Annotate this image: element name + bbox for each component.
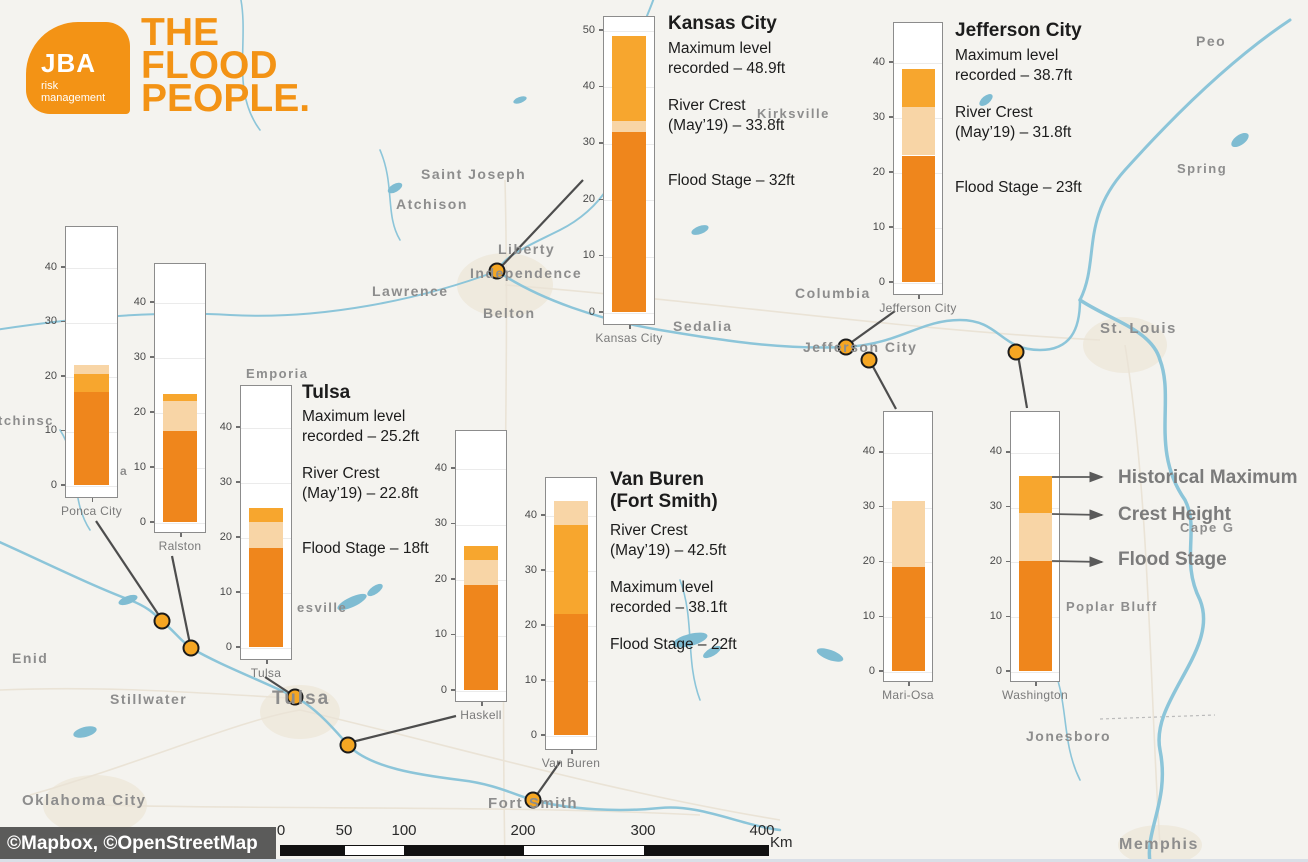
map-place-label: Memphis [1119,836,1199,854]
x-tick-mark [908,682,910,686]
y-tick-mark [61,266,65,268]
flood-map-canvas[interactable]: Saint JosephAtchisonLibertyIndependenceL… [0,0,1308,862]
map-place-label: St. Louis [1100,320,1177,337]
map-place-label: Liberty [498,241,555,257]
y-tick-label: 0 [569,306,595,318]
bar-segment-crest [1019,513,1052,561]
jba-logo: JBA risk management [26,22,130,114]
gauge-name-label: Kansas City [595,331,662,345]
y-tick-mark [150,466,154,468]
gauge-name-label: Tulsa [251,666,281,680]
callout-kansas-city: Kansas CityMaximum levelrecorded – 48.9f… [668,13,883,35]
map-place-label: Jonesboro [1026,728,1111,744]
bar-segment-flood-stage [612,132,646,312]
y-tick-label: 10 [31,424,57,436]
map-place-label: Emporia [246,366,309,381]
callout-paragraph: River Crest(May’19) – 31.8ft [955,103,1071,143]
y-tick-label: 10 [569,249,595,261]
gridline [604,31,654,32]
bar-segment-flood-stage [554,614,588,735]
bar-segment-crest [902,107,935,155]
gauge-point-marker-haskell[interactable] [340,737,357,754]
y-tick-mark [879,506,883,508]
gauge-name-label: Ralston [159,539,202,553]
x-tick-mark [481,702,483,706]
jba-logo-sub1: risk [41,80,58,92]
gridline [894,63,942,64]
y-tick-label: 40 [120,296,146,308]
gauge-point-marker-independence[interactable] [489,263,506,280]
bar-segment-flood-stage [249,548,283,647]
scale-tick-300: 300 [630,822,655,839]
y-tick-label: 0 [849,665,875,677]
y-tick-mark [150,301,154,303]
y-tick-label: 40 [206,421,232,433]
y-tick-label: 20 [859,166,885,178]
gridline [155,523,205,524]
y-tick-mark [879,670,883,672]
y-tick-label: 30 [31,315,57,327]
jba-logo-text: JBA [41,48,96,79]
x-tick-mark [266,660,268,664]
y-tick-label: 0 [421,684,447,696]
gauge-point-marker-mari-osa[interactable] [861,352,878,369]
y-tick-label: 20 [976,555,1002,567]
y-tick-label: 30 [511,564,537,576]
y-tick-mark [599,29,603,31]
y-tick-label: 30 [976,500,1002,512]
gridline [894,283,942,284]
bar-segment-flood-stage [74,392,109,485]
scale-tick-100: 100 [391,822,416,839]
y-tick-label: 40 [569,80,595,92]
y-tick-mark [451,467,455,469]
y-tick-mark [1006,616,1010,618]
y-tick-mark [599,86,603,88]
callout-title: Kansas City [668,13,883,35]
bar-segment-crest [249,522,283,548]
legend-crest-height: Crest Height [1118,504,1231,526]
y-tick-label: 40 [511,509,537,521]
y-tick-mark [61,430,65,432]
y-tick-label: 30 [421,517,447,529]
map-place-label: Oklahoma City [22,792,147,809]
y-tick-mark [1006,670,1010,672]
y-tick-mark [879,616,883,618]
x-tick-mark [1035,682,1037,686]
gridline [241,648,291,649]
y-tick-mark [879,451,883,453]
y-tick-mark [1006,561,1010,563]
gauge-name-label: Haskell [460,708,501,722]
y-tick-label: 20 [120,406,146,418]
legend-flood-stage: Flood Stage [1118,549,1227,571]
bar-segment-historical-maximum [554,525,588,614]
bar-segment-historical-maximum [74,374,109,392]
gridline [66,268,117,269]
jba-logo-sub2: management [41,92,105,104]
callout-paragraph: Flood Stage – 18ft [302,539,429,559]
map-place-label: Spring [1177,161,1227,176]
y-tick-mark [599,311,603,313]
y-tick-label: 40 [859,56,885,68]
y-tick-label: 0 [31,479,57,491]
y-tick-label: 30 [120,351,146,363]
bar-segment-historical-maximum [1019,476,1052,513]
map-place-label: Saint Joseph [421,166,526,182]
map-place-label: Enid [12,650,48,666]
y-tick-label: 10 [859,221,885,233]
y-tick-mark [1006,506,1010,508]
x-tick-mark [180,533,182,537]
callout-paragraph: Flood Stage – 23ft [955,178,1082,198]
callout-paragraph: Maximum levelrecorded – 38.7ft [955,46,1072,86]
y-tick-label: 30 [849,500,875,512]
callout-title: Tulsa [302,382,517,404]
map-attribution: ©Mapbox, ©OpenStreetMap [0,827,276,861]
map-place-label: Stillwater [110,691,187,707]
y-tick-label: 40 [421,462,447,474]
y-tick-mark [889,61,893,63]
y-tick-mark [889,281,893,283]
y-tick-mark [61,375,65,377]
y-tick-label: 20 [31,370,57,382]
y-tick-label: 10 [421,628,447,640]
bar-segment-crest [892,501,925,567]
y-tick-mark [150,356,154,358]
callout-paragraph: Flood Stage – 22ft [610,635,737,655]
gauge-name-label: Jefferson City [879,301,956,315]
bar-segment-historical-maximum [249,508,283,521]
tagline: THE FLOOD PEOPLE. [141,16,310,115]
x-tick-mark [92,498,94,502]
y-tick-mark [1006,451,1010,453]
map-place-label: Independence [470,265,582,281]
y-tick-mark [889,226,893,228]
y-tick-mark [150,521,154,523]
y-tick-mark [541,734,545,736]
y-tick-mark [451,634,455,636]
map-place-label: Peo [1196,33,1226,49]
callout-paragraph: Maximum levelrecorded – 38.1ft [610,578,727,618]
callout-tulsa: TulsaMaximum levelrecorded – 25.2ftRiver… [302,382,517,404]
y-tick-mark [451,689,455,691]
y-tick-label: 10 [120,461,146,473]
y-tick-label: 40 [849,445,875,457]
x-tick-mark [918,295,920,299]
gauge-point-marker-jefferson-city[interactable] [838,339,855,356]
map-place-label: Sedalia [673,318,733,334]
gauge-point-marker-ponca-city[interactable] [154,613,171,630]
map-place-label: Lawrence [372,283,449,299]
y-tick-label: 20 [206,531,232,543]
bar-segment-flood-stage [902,156,935,283]
y-tick-label: 30 [569,136,595,148]
gauge-name-label: Mari-Osa [882,688,934,702]
y-tick-label: 10 [849,610,875,622]
gauge-point-marker-washington[interactable] [1008,344,1025,361]
y-tick-mark [236,426,240,428]
y-tick-label: 0 [976,665,1002,677]
scale-tick-200: 200 [510,822,535,839]
bar-segment-historical-maximum [163,394,197,401]
y-tick-label: 0 [511,729,537,741]
bar-segment-crest [163,401,197,431]
map-place-label: Poplar Bluff [1066,599,1158,614]
gridline [155,303,205,304]
callout-paragraph: Flood Stage – 32ft [668,171,795,191]
gridline [456,525,506,526]
callout-paragraph: Maximum levelrecorded – 48.9ft [668,39,785,79]
callout-paragraph: River Crest(May’19) – 42.5ft [610,521,726,561]
gauge-name-label: Van Buren [542,756,601,770]
gridline [1011,453,1059,454]
y-tick-mark [236,646,240,648]
tagline-line3: PEOPLE. [141,82,310,115]
map-place-label: Atchison [396,196,468,212]
gauge-point-marker-van-buren[interactable] [525,792,542,809]
gridline [66,486,117,487]
gauge-name-label: Washington [1002,688,1068,702]
y-tick-label: 40 [976,445,1002,457]
y-tick-mark [541,679,545,681]
bar-segment-crest [554,501,588,525]
bar-segment-crest [464,560,498,585]
map-place-label: Belton [483,305,536,321]
x-tick-mark [629,325,631,329]
y-tick-mark [599,142,603,144]
bar-segment-flood-stage [163,431,197,522]
y-tick-mark [541,514,545,516]
y-tick-label: 10 [511,674,537,686]
y-tick-label: 20 [511,619,537,631]
y-tick-mark [236,591,240,593]
gridline [604,313,654,314]
callout-title: Van Buren(Fort Smith) [610,469,825,513]
y-tick-label: 40 [31,261,57,273]
y-tick-label: 30 [206,476,232,488]
map-place-label: esville [297,600,347,615]
gridline [456,469,506,470]
y-tick-mark [451,578,455,580]
gridline [241,483,291,484]
y-tick-mark [889,171,893,173]
x-tick-mark [571,750,573,754]
y-tick-label: 20 [421,573,447,585]
y-tick-mark [879,561,883,563]
y-tick-mark [61,321,65,323]
y-tick-mark [236,536,240,538]
y-tick-mark [61,484,65,486]
scale-tick-0: 0 [277,822,285,839]
callout-jefferson-city: Jefferson CityMaximum levelrecorded – 38… [955,20,1170,42]
y-tick-label: 10 [206,586,232,598]
legend-historical-maximum: Historical Maximum [1118,467,1298,489]
bar-segment-historical-maximum [464,546,498,560]
bar-segment-historical-maximum [902,69,935,107]
gridline [546,736,596,737]
y-tick-label: 30 [859,111,885,123]
gauge-point-marker-ralston[interactable] [183,640,200,657]
bar-segment-flood-stage [464,585,498,690]
bar-segment-flood-stage [1019,561,1052,671]
y-tick-label: 50 [569,24,595,36]
bar-segment-crest [612,121,646,131]
y-tick-mark [451,523,455,525]
gridline [1011,672,1059,673]
y-tick-mark [599,255,603,257]
bar-segment-flood-stage [892,567,925,671]
y-tick-mark [541,624,545,626]
map-scale-bar [280,845,769,856]
callout-paragraph: Maximum levelrecorded – 25.2ft [302,407,419,447]
gridline [884,453,932,454]
gridline [155,358,205,359]
y-tick-mark [541,569,545,571]
gridline [456,691,506,692]
y-tick-mark [150,411,154,413]
callout-van-buren: Van Buren(Fort Smith)River Crest(May’19)… [610,469,825,513]
y-tick-label: 0 [206,641,232,653]
gridline [884,672,932,673]
y-tick-label: 0 [859,276,885,288]
scale-tick-50: 50 [336,822,353,839]
callout-paragraph: River Crest(May’19) – 22.8ft [302,464,418,504]
y-tick-label: 0 [120,516,146,528]
y-tick-mark [236,481,240,483]
gridline [241,428,291,429]
gridline [66,323,117,324]
scale-unit-label: Km [770,834,793,851]
map-place-label: Jefferson City [803,339,917,355]
bar-segment-crest [74,365,109,374]
gauge-name-label: Ponca City [61,504,122,518]
y-tick-label: 20 [849,555,875,567]
y-tick-mark [889,116,893,118]
gauge-point-marker-tulsa[interactable] [287,689,304,706]
callout-title: Jefferson City [955,20,1170,42]
bar-segment-historical-maximum [612,36,646,121]
y-tick-mark [599,199,603,201]
callout-paragraph: River Crest(May’19) – 33.8ft [668,96,784,136]
y-tick-label: 10 [976,610,1002,622]
y-tick-label: 20 [569,193,595,205]
